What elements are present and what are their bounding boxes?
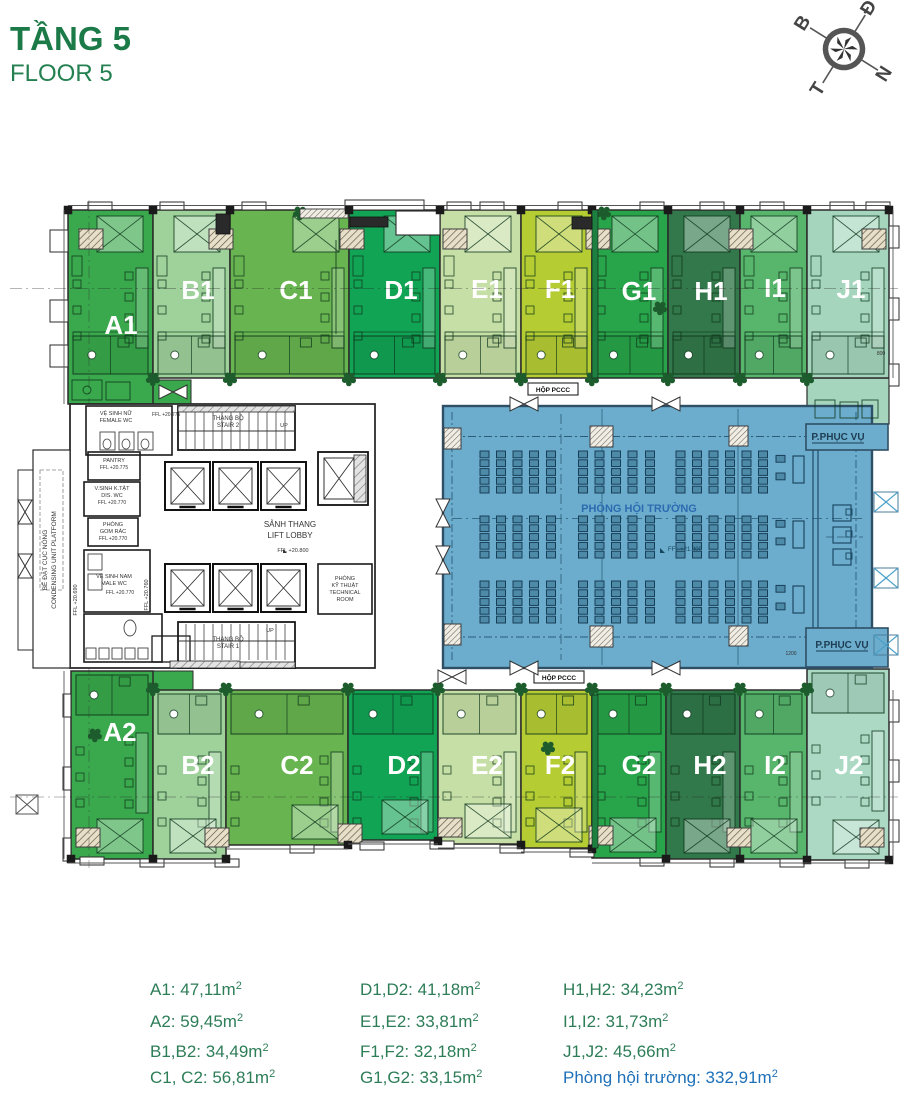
svg-text:D2: D2 [387, 750, 420, 780]
svg-text:FFL +20.775: FFL +20.775 [152, 412, 181, 418]
svg-text:E1,E2: 33,81m2: E1,E2: 33,81m2 [360, 1012, 479, 1031]
svg-text:FFL +20.770: FFL +20.770 [106, 590, 135, 596]
svg-text:J1,J2: 45,66m2: J1,J2: 45,66m2 [563, 1042, 676, 1061]
svg-text:800: 800 [877, 351, 886, 357]
svg-text:VỆ SINH NỮ: VỆ SINH NỮ [100, 409, 133, 417]
svg-text:FFL +20.770: FFL +20.770 [98, 500, 127, 506]
svg-text:FFL +20.775: FFL +20.775 [100, 465, 129, 471]
svg-text:THANG BỘ: THANG BỘ [212, 636, 244, 643]
svg-text:A2: A2 [103, 717, 136, 747]
svg-text:B1: B1 [181, 275, 214, 305]
svg-text:A1: 47,11m2: A1: 47,11m2 [150, 980, 242, 999]
svg-text:UP: UP [266, 628, 274, 634]
svg-text:J1: J1 [837, 274, 866, 304]
svg-text:TECHNICAL: TECHNICAL [329, 590, 360, 596]
svg-text:G1: G1 [622, 276, 657, 306]
svg-text:1200: 1200 [785, 651, 796, 657]
svg-text:ROOM: ROOM [336, 597, 354, 603]
svg-text:PHÒNG: PHÒNG [335, 575, 355, 582]
svg-text:A2: 59,45m2: A2: 59,45m2 [150, 1012, 243, 1031]
svg-text:Phòng hội trường: 332,91m2: Phòng hội trường: 332,91m2 [563, 1068, 778, 1087]
svg-text:P.PHỤC VỤ: P.PHỤC VỤ [811, 432, 864, 443]
svg-text:FFL +20.690: FFL +20.690 [73, 584, 79, 615]
svg-text:F1: F1 [545, 274, 575, 304]
svg-text:FFL +20.770: FFL +20.770 [99, 536, 128, 542]
svg-text:E2: E2 [471, 750, 503, 780]
svg-text:FFL +20.760: FFL +20.760 [144, 579, 150, 610]
svg-text:KỸ THUẬT: KỸ THUẬT [331, 582, 359, 589]
svg-text:V.SINH K.TẬT: V.SINH K.TẬT [95, 485, 131, 492]
svg-text:CONDENSING UNIT PLATFORM: CONDENSING UNIT PLATFORM [51, 511, 58, 609]
svg-text:G2: G2 [622, 750, 657, 780]
svg-text:FFL +21.800: FFL +21.800 [668, 547, 703, 553]
svg-text:UP: UP [280, 423, 288, 429]
svg-text:FLOOR 5: FLOOR 5 [10, 60, 113, 87]
svg-text:THANG BỘ: THANG BỘ [212, 415, 244, 422]
svg-text:I1,I2: 31,73m2: I1,I2: 31,73m2 [563, 1012, 668, 1031]
svg-text:GOM RÁC: GOM RÁC [100, 528, 126, 535]
svg-text:F1,F2: 32,18m2: F1,F2: 32,18m2 [360, 1042, 477, 1061]
svg-text:D1: D1 [384, 275, 417, 305]
svg-text:STAIR 2: STAIR 2 [217, 423, 240, 429]
svg-text:LIFT LOBBY: LIFT LOBBY [267, 531, 313, 540]
svg-text:H1: H1 [694, 276, 727, 306]
svg-text:I1: I1 [764, 273, 786, 303]
svg-text:TẦNG 5: TẦNG 5 [10, 20, 131, 57]
svg-text:HỘP PCCC: HỘP PCCC [536, 385, 570, 394]
svg-text:E1: E1 [471, 274, 503, 304]
svg-text:FFL +20.800: FFL +20.800 [277, 548, 308, 554]
svg-text:J2: J2 [835, 750, 864, 780]
svg-text:D1,D2: 41,18m2: D1,D2: 41,18m2 [360, 980, 480, 999]
svg-text:P.PHỤC VỤ: P.PHỤC VỤ [815, 640, 868, 651]
svg-text:SẢNH THANG: SẢNH THANG [264, 520, 316, 529]
svg-text:C1, C2: 56,81m2: C1, C2: 56,81m2 [150, 1068, 275, 1087]
svg-text:PHÒNG: PHÒNG [103, 521, 123, 528]
svg-text:H1,H2: 34,23m2: H1,H2: 34,23m2 [563, 980, 683, 999]
svg-text:B1,B2: 34,49m2: B1,B2: 34,49m2 [150, 1042, 269, 1061]
svg-text:FEMALE WC: FEMALE WC [100, 418, 133, 424]
svg-text:I2: I2 [764, 750, 786, 780]
svg-text:C2: C2 [280, 750, 313, 780]
svg-text:MALE WC: MALE WC [101, 581, 127, 587]
svg-text:G1,G2: 33,15m2: G1,G2: 33,15m2 [360, 1068, 482, 1087]
svg-text:H2: H2 [693, 750, 726, 780]
svg-text:STAIR 1: STAIR 1 [217, 644, 240, 650]
svg-text:A1: A1 [104, 310, 137, 340]
svg-text:BỂ ĐẶT CỤC NÓNG: BỂ ĐẶT CỤC NÓNG [40, 530, 49, 591]
svg-text:VỆ SINH NAM: VỆ SINH NAM [96, 572, 132, 580]
svg-text:DIS. WC: DIS. WC [101, 493, 122, 499]
svg-text:PHÒNG HỘI TRƯỜNG: PHÒNG HỘI TRƯỜNG [581, 502, 697, 515]
svg-text:HỘP PCCC: HỘP PCCC [542, 673, 576, 682]
svg-text:C1: C1 [279, 275, 312, 305]
svg-text:PANTRY: PANTRY [103, 458, 125, 464]
svg-text:B2: B2 [181, 750, 214, 780]
